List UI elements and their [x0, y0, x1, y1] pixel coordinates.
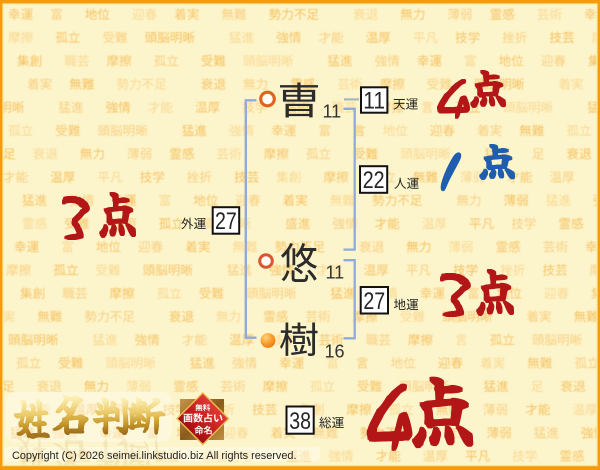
svg-text:16: 16 — [325, 342, 345, 362]
svg-text:27: 27 — [363, 288, 385, 315]
svg-text:38: 38 — [289, 408, 311, 435]
svg-text:22: 22 — [363, 167, 385, 194]
svg-text:27: 27 — [215, 208, 237, 235]
svg-text:Copyright (C) 2026 seimei.link: Copyright (C) 2026 seimei.linkstudio.biz… — [12, 450, 297, 462]
svg-text:11: 11 — [326, 263, 345, 283]
svg-text:11: 11 — [323, 102, 342, 122]
svg-text:11: 11 — [363, 88, 385, 115]
